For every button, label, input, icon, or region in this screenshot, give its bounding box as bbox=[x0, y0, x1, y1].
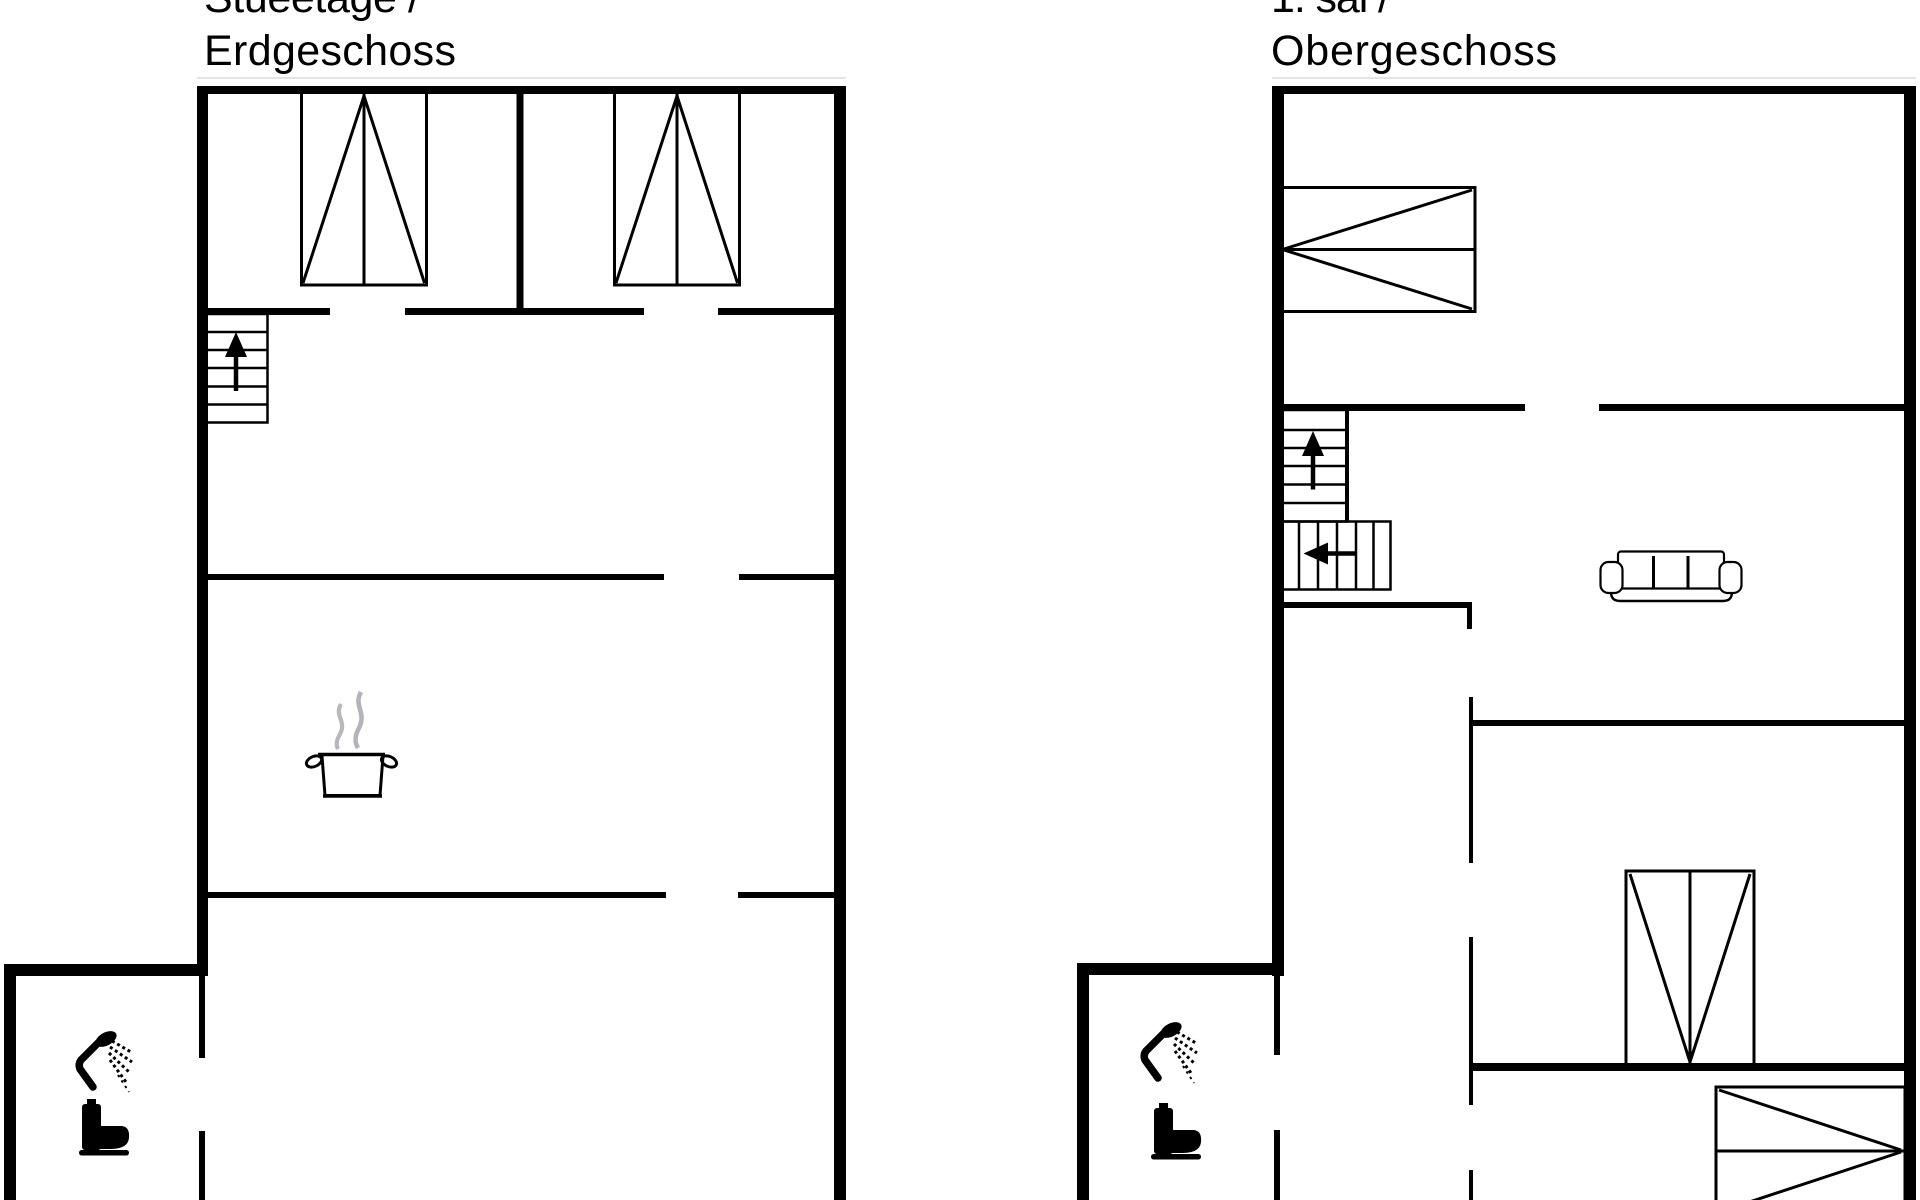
svg-text:1. sal /: 1. sal / bbox=[1271, 0, 1390, 22]
svg-text:Erdgeschoss: Erdgeschoss bbox=[204, 27, 456, 75]
svg-text:Obergeschoss: Obergeschoss bbox=[1271, 27, 1557, 75]
svg-text:Stueetage /: Stueetage / bbox=[204, 0, 420, 22]
